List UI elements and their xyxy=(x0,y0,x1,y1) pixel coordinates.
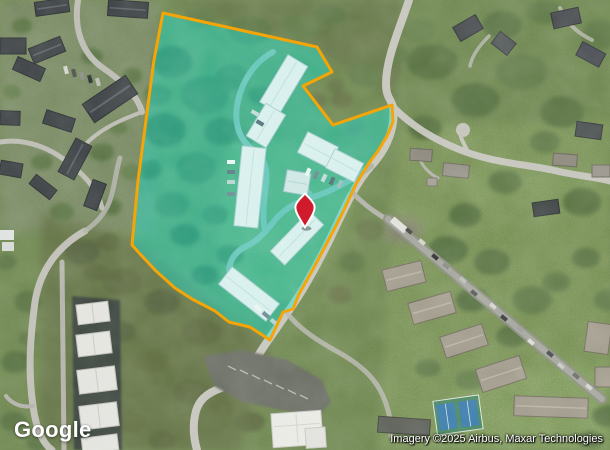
attribution-text: Imagery ©2025 Airbus, Maxar Technologies xyxy=(390,433,603,445)
satellite-map[interactable] xyxy=(0,0,610,450)
pin-shadow xyxy=(302,226,312,230)
map-viewport[interactable]: Google Imagery ©2025 Airbus, Maxar Techn… xyxy=(0,0,610,450)
google-logo[interactable]: Google xyxy=(14,417,92,443)
